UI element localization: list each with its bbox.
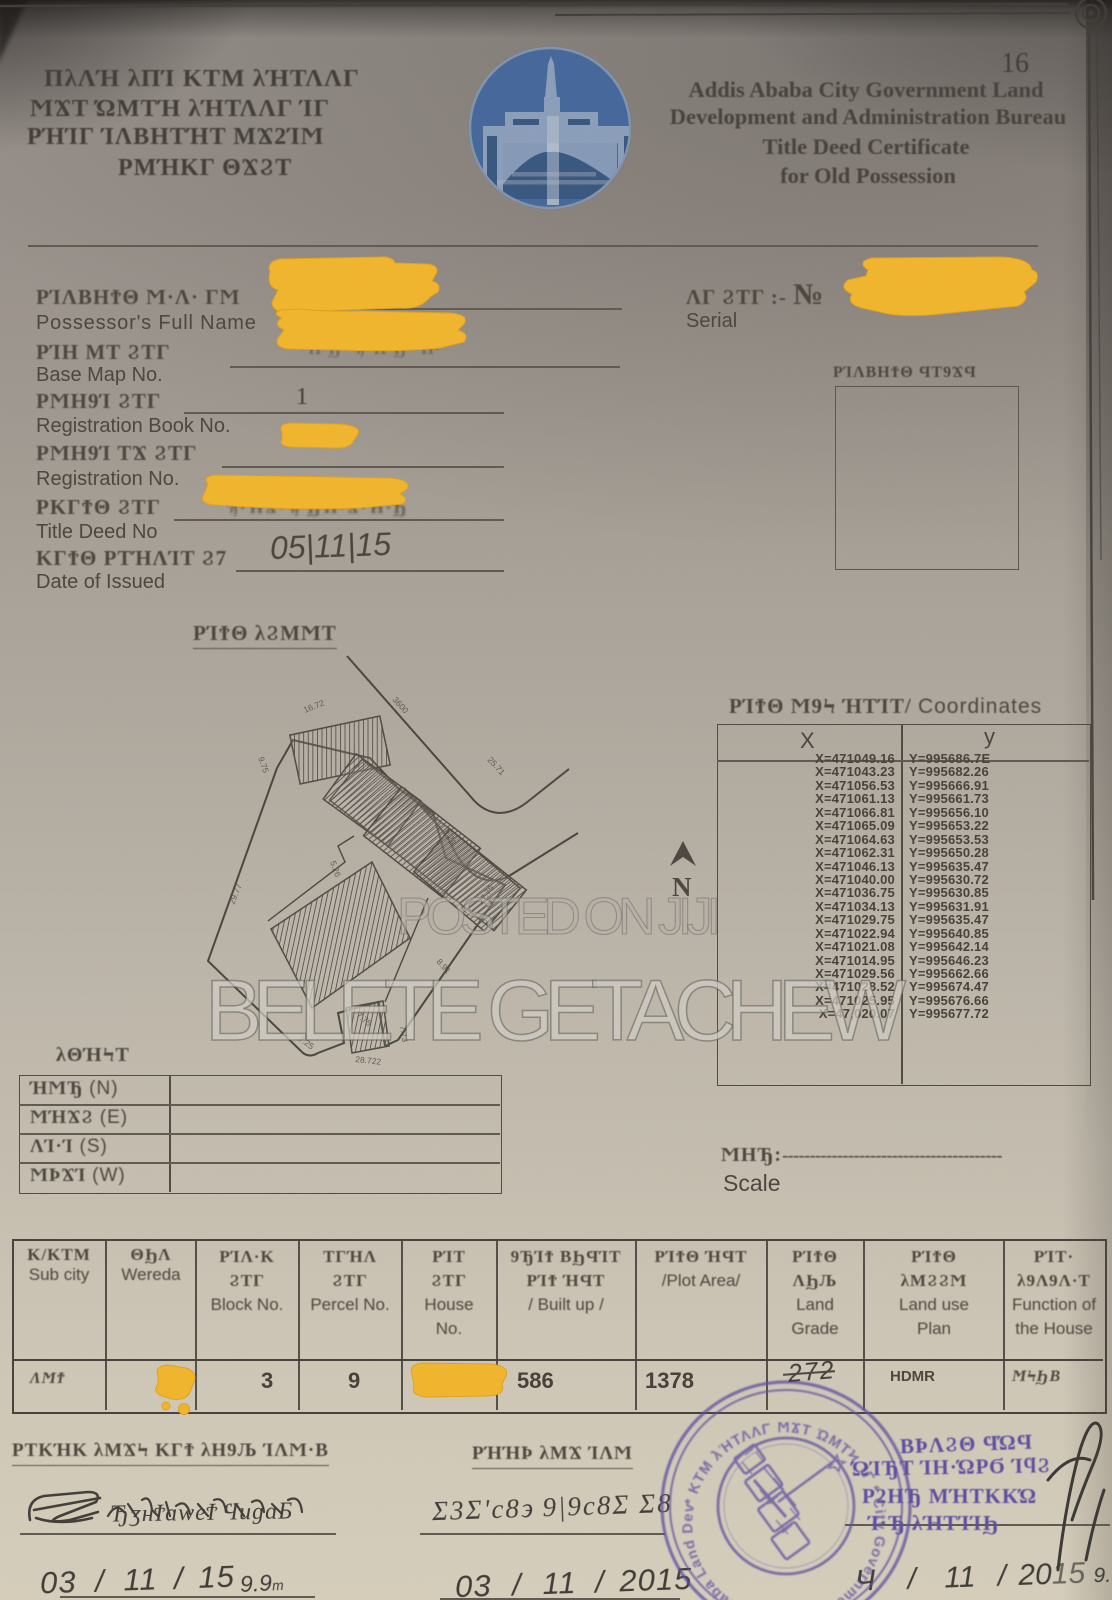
svg-text:7.73: 7.73: [398, 1025, 410, 1043]
svg-text:29.77: 29.77: [227, 882, 244, 906]
svg-text:7.75: 7.75: [355, 1010, 374, 1028]
svg-text:7.25: 7.25: [297, 1034, 316, 1052]
svg-text:27.75: 27.75: [475, 883, 496, 906]
svg-text:9.75: 9.75: [256, 755, 271, 774]
svg-text:25.71: 25.71: [486, 755, 508, 778]
svg-text:5.28: 5.28: [443, 827, 458, 846]
svg-text:28.722: 28.722: [355, 1054, 382, 1067]
svg-text:16.72: 16.72: [302, 698, 326, 715]
svg-text:N: N: [672, 872, 692, 902]
svg-text:5.26: 5.26: [328, 859, 343, 878]
svg-text:8.91: 8.91: [435, 957, 454, 976]
svg-text:POSTED ON JIJI: POSTED ON JIJI: [397, 888, 723, 946]
svg-text:3600: 3600: [391, 695, 411, 716]
